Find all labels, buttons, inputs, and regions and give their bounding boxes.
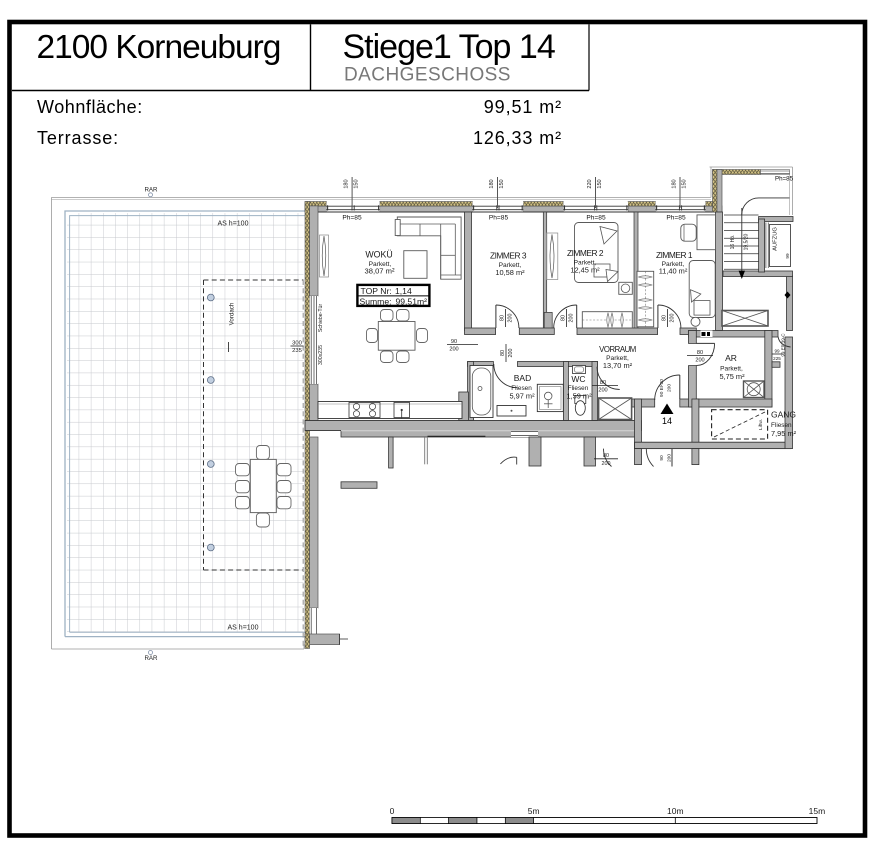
svg-text:Stiege1 Top 14: Stiege1 Top 14 bbox=[343, 28, 555, 66]
svg-text:AS h=100: AS h=100 bbox=[228, 625, 259, 632]
svg-text:12,45 m²: 12,45 m² bbox=[570, 266, 600, 275]
svg-text:2100 Korneuburg: 2100 Korneuburg bbox=[37, 29, 281, 66]
svg-text:15m: 15m bbox=[809, 806, 826, 816]
svg-text:80: 80 bbox=[697, 350, 703, 356]
svg-text:GANG: GANG bbox=[771, 410, 796, 420]
svg-text:5m: 5m bbox=[528, 806, 540, 816]
svg-text:200: 200 bbox=[602, 461, 611, 467]
svg-text:0: 0 bbox=[390, 806, 395, 816]
svg-text:5,97 m²: 5,97 m² bbox=[509, 392, 535, 401]
svg-text:Summe:: Summe: bbox=[360, 297, 392, 307]
svg-text:80: 80 bbox=[603, 453, 609, 459]
svg-text:Ph=85: Ph=85 bbox=[489, 215, 509, 222]
svg-text:7,95 m²: 7,95 m² bbox=[771, 429, 797, 438]
svg-text:180: 180 bbox=[489, 179, 495, 188]
svg-text:Ph=85: Ph=85 bbox=[342, 215, 362, 222]
svg-text:80: 80 bbox=[661, 315, 667, 321]
svg-text:225: 225 bbox=[773, 356, 781, 361]
svg-text:99 El² 39-C: 99 El² 39-C bbox=[781, 333, 786, 357]
svg-text:ZIMMER 2: ZIMMER 2 bbox=[567, 248, 604, 258]
svg-text:Ph=85: Ph=85 bbox=[775, 175, 794, 182]
svg-text:300x235: 300x235 bbox=[318, 345, 324, 365]
svg-text:Vordach: Vordach bbox=[229, 302, 236, 325]
svg-text:5,75 m²: 5,75 m² bbox=[719, 372, 745, 381]
svg-text:90: 90 bbox=[451, 339, 457, 345]
svg-text:80: 80 bbox=[560, 315, 566, 321]
svg-text:AUFZUG: AUFZUG bbox=[772, 227, 778, 251]
svg-text:AS h=100: AS h=100 bbox=[218, 221, 249, 228]
svg-text:10,58 m²: 10,58 m² bbox=[495, 268, 525, 277]
svg-text:80: 80 bbox=[500, 350, 506, 356]
svg-text:1,59 m²: 1,59 m² bbox=[566, 392, 592, 401]
svg-text:200: 200 bbox=[598, 388, 607, 394]
svg-text:200: 200 bbox=[568, 314, 574, 323]
svg-text:14: 14 bbox=[662, 416, 672, 426]
svg-text:Schiebe-Tür: Schiebe-Tür bbox=[318, 304, 324, 333]
svg-text:200: 200 bbox=[695, 358, 704, 364]
svg-text:220: 220 bbox=[587, 179, 593, 188]
svg-text:99: 99 bbox=[774, 348, 780, 353]
svg-text:90: 90 bbox=[659, 455, 665, 461]
svg-text:Ph=85: Ph=85 bbox=[666, 215, 686, 222]
svg-text:ZIMMER 3: ZIMMER 3 bbox=[490, 251, 527, 261]
svg-text:AR: AR bbox=[725, 353, 737, 363]
svg-text:13,70 m²: 13,70 m² bbox=[603, 361, 633, 370]
svg-text:200: 200 bbox=[507, 314, 513, 323]
svg-text:10m: 10m bbox=[667, 806, 684, 816]
svg-text:WOKÜ: WOKÜ bbox=[365, 250, 392, 260]
svg-text:99,51 m²: 99,51 m² bbox=[484, 97, 562, 117]
svg-text:RAR: RAR bbox=[144, 655, 158, 662]
svg-text:Wohnfläche:: Wohnfläche: bbox=[37, 97, 143, 117]
svg-text:80: 80 bbox=[600, 380, 606, 386]
svg-text:200: 200 bbox=[669, 314, 675, 323]
svg-text:DACHGESCHOSS: DACHGESCHOSS bbox=[344, 65, 511, 86]
svg-text:180: 180 bbox=[344, 179, 350, 188]
svg-text:200: 200 bbox=[667, 454, 673, 462]
svg-text:150: 150 bbox=[597, 179, 603, 188]
svg-text:99,51m²: 99,51m² bbox=[395, 297, 427, 307]
svg-text:200: 200 bbox=[667, 384, 673, 392]
svg-text:38,07 m²: 38,07 m² bbox=[365, 267, 395, 276]
svg-text:300: 300 bbox=[292, 340, 302, 346]
svg-text:99: 99 bbox=[785, 253, 790, 259]
svg-text:Terrasse:: Terrasse: bbox=[37, 128, 119, 148]
svg-text:150: 150 bbox=[499, 179, 505, 188]
svg-text:Ph=85: Ph=85 bbox=[586, 215, 606, 222]
svg-text:180: 180 bbox=[672, 179, 678, 188]
svg-text:19,5/20: 19,5/20 bbox=[744, 233, 750, 250]
svg-text:11,40 m²: 11,40 m² bbox=[659, 267, 688, 276]
svg-text:126,33 m²: 126,33 m² bbox=[473, 128, 562, 148]
svg-text:150: 150 bbox=[682, 179, 688, 188]
svg-text:150: 150 bbox=[354, 179, 360, 188]
svg-text:TOP Nr:: TOP Nr: bbox=[361, 286, 392, 296]
svg-text:16 Hö.: 16 Hö. bbox=[730, 235, 736, 250]
svg-text:Liftw.: Liftw. bbox=[758, 419, 764, 430]
svg-text:Fliesen: Fliesen bbox=[771, 422, 792, 429]
svg-text:WC: WC bbox=[571, 374, 585, 384]
svg-text:VORRAUM: VORRAUM bbox=[599, 345, 636, 354]
svg-text:1,14: 1,14 bbox=[395, 286, 412, 296]
svg-text:90 El²30: 90 El²30 bbox=[659, 379, 665, 397]
svg-text:ZIMMER 1: ZIMMER 1 bbox=[656, 250, 693, 260]
svg-text:RAR: RAR bbox=[144, 187, 158, 194]
svg-text:235: 235 bbox=[292, 348, 302, 354]
svg-text:80: 80 bbox=[499, 315, 505, 321]
svg-text:BAD: BAD bbox=[514, 373, 531, 383]
svg-text:200: 200 bbox=[449, 347, 458, 353]
svg-text:200: 200 bbox=[508, 349, 514, 358]
